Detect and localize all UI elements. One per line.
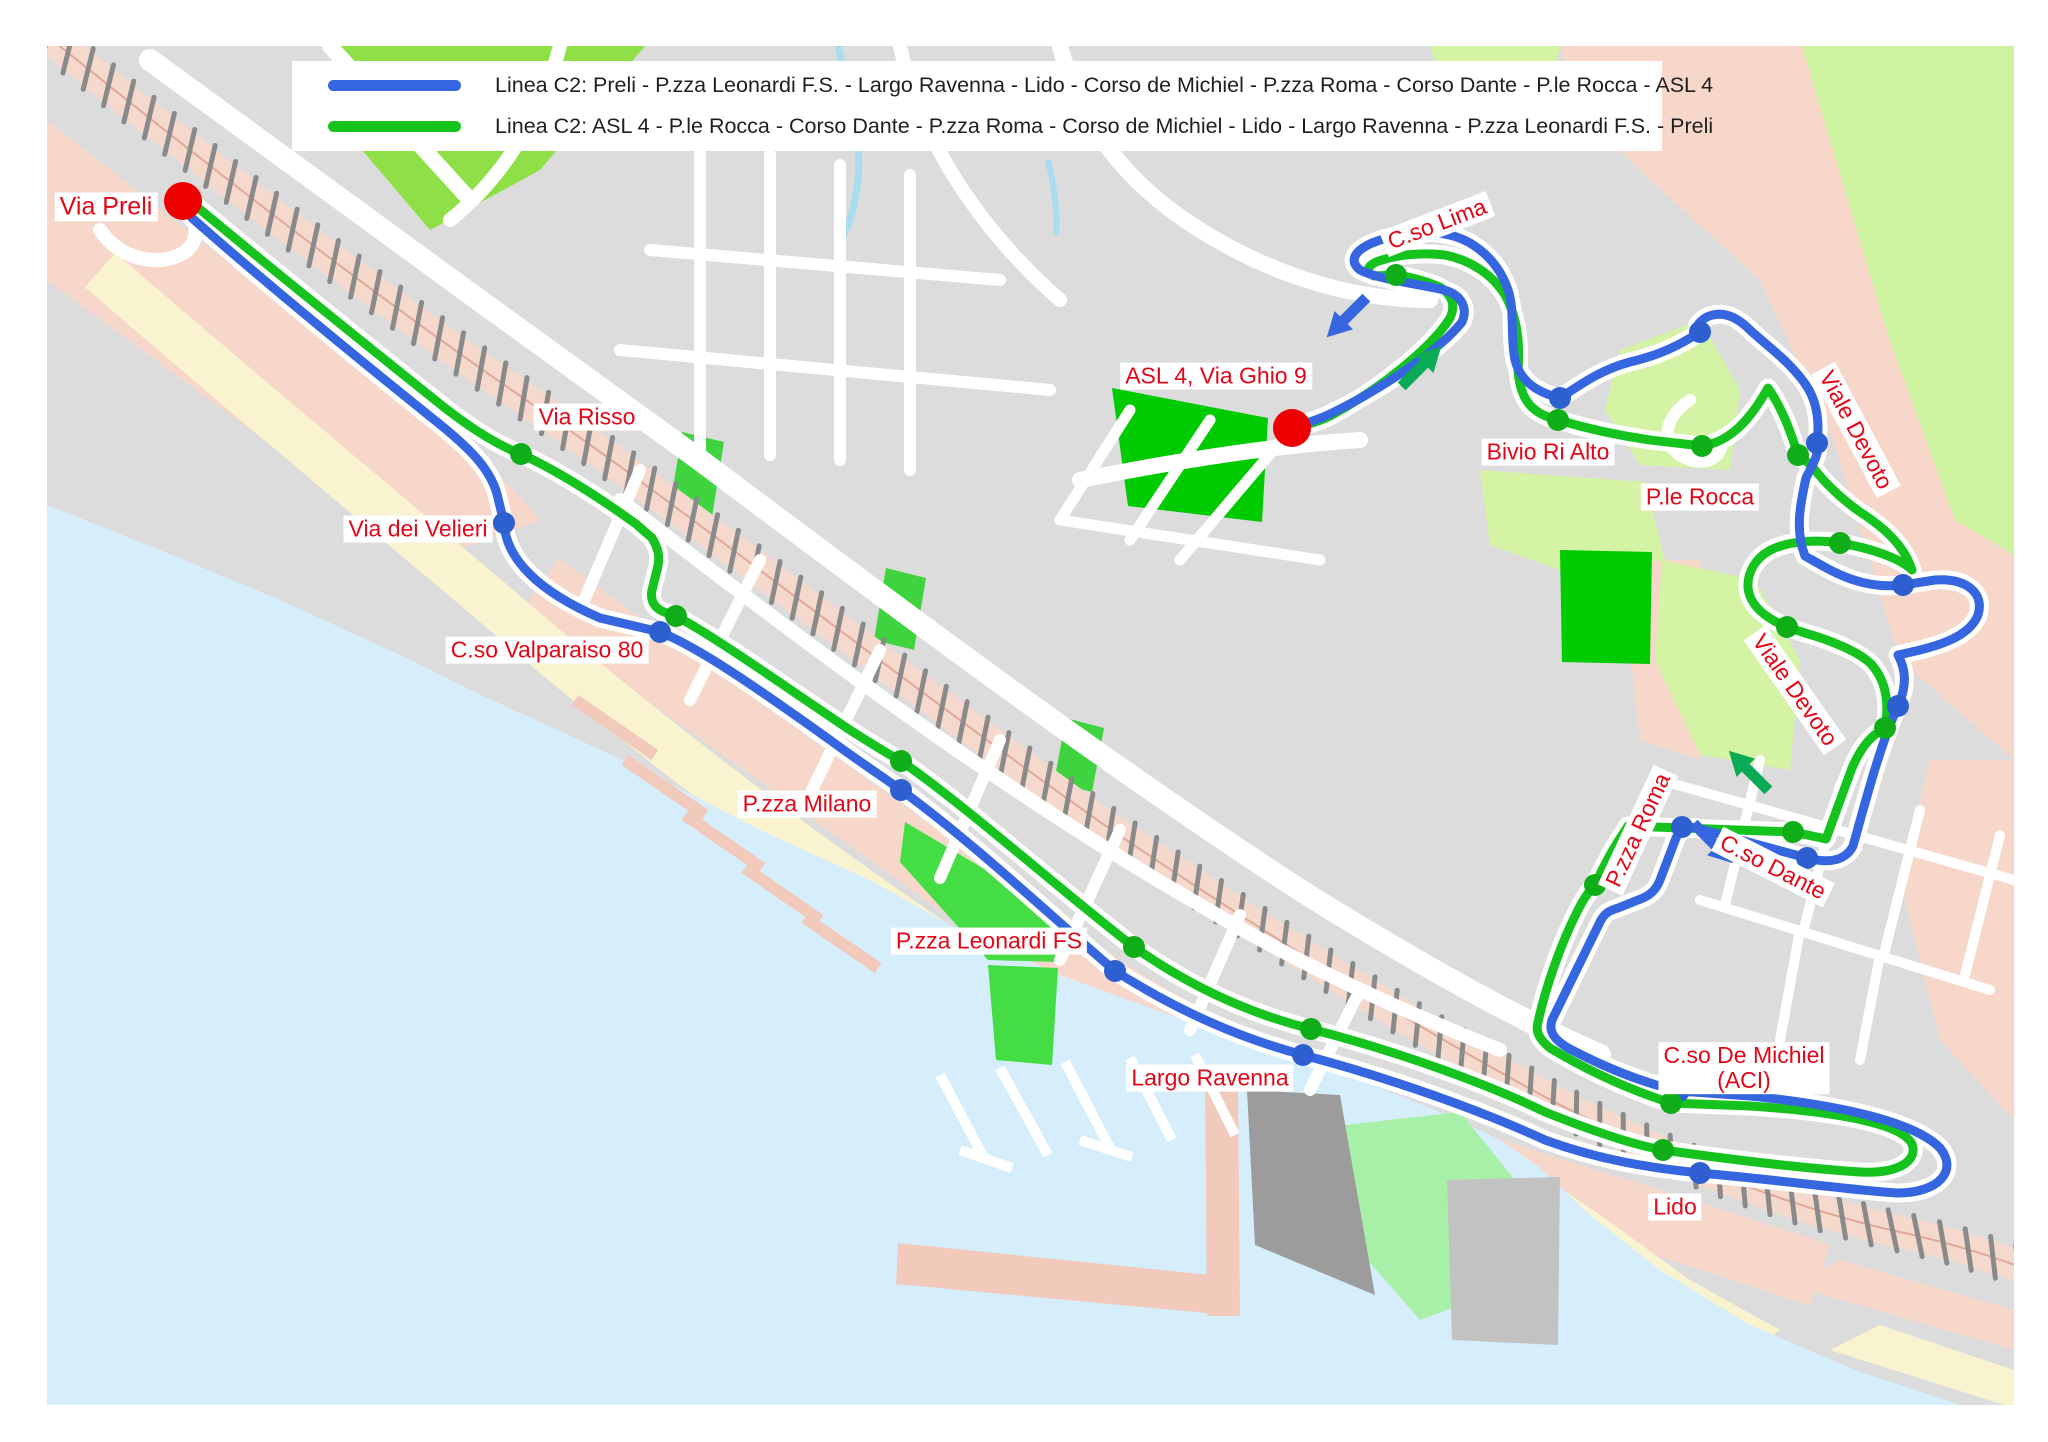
place-label: Largo Ravenna	[1126, 1065, 1293, 1092]
bus-stop-dot	[1549, 387, 1571, 409]
bus-stop-dot	[665, 605, 687, 627]
bus-stop-dot	[493, 512, 515, 534]
bus-stop-dot	[1292, 1044, 1314, 1066]
bus-stop-dot	[1689, 1162, 1711, 1184]
bus-stop-dot	[1660, 1092, 1682, 1114]
place-label: C.so De Michiel (ACI)	[1658, 1042, 1829, 1094]
place-label: Bivio Ri Alto	[1482, 439, 1615, 466]
place-label: Lido	[1648, 1194, 1701, 1221]
bus-stop-dot	[1887, 695, 1909, 717]
place-label: Via Risso	[534, 404, 641, 431]
bus-stop-dot	[890, 750, 912, 772]
legend-swatch-green	[328, 121, 461, 132]
bus-stop-dot	[1671, 816, 1693, 838]
place-label: P.zza Milano	[738, 791, 877, 818]
terminus-circle	[1273, 409, 1311, 447]
bus-stop-dot	[1123, 936, 1145, 958]
bus-stop-dot	[1829, 532, 1851, 554]
place-label: P.zza Leonardi FS	[891, 928, 1087, 955]
bus-stop-dot	[1689, 321, 1711, 343]
legend-row-return: Linea C2: ASL 4 - P.le Rocca - Corso Dan…	[292, 110, 1662, 144]
place-label: P.le Rocca	[1641, 484, 1759, 511]
bus-stop-dot	[1776, 616, 1798, 638]
route-map-page: Via PreliVia RissoVia dei VelieriC.so Va…	[0, 0, 2048, 1442]
bus-stop-dot	[890, 779, 912, 801]
bus-stop-dot	[1806, 432, 1828, 454]
bus-stop-dot	[1547, 409, 1569, 431]
place-label: C.so Valparaiso 80	[446, 637, 649, 664]
bus-stop-dot	[1787, 444, 1809, 466]
bus-stop-dot	[1892, 574, 1914, 596]
map-canvas	[0, 0, 2048, 1442]
place-label: Via dei Velieri	[344, 516, 493, 543]
bus-stop-dot	[1691, 435, 1713, 457]
bus-stop-dot	[510, 443, 532, 465]
bus-stop-dot	[1385, 264, 1407, 286]
place-label: ASL 4, Via Ghio 9	[1120, 363, 1312, 390]
terminus-circle	[164, 182, 202, 220]
legend-label-outbound: Linea C2: Preli - P.zza Leonardi F.S. - …	[495, 73, 1713, 98]
legend: Linea C2: Preli - P.zza Leonardi F.S. - …	[292, 61, 1662, 151]
bus-stop-dot	[1782, 821, 1804, 843]
place-label: Via Preli	[55, 193, 158, 222]
railway-tick	[2016, 1245, 2019, 1287]
bus-stop-dot	[1104, 960, 1126, 982]
legend-swatch-blue	[328, 80, 461, 91]
bus-stop-dot	[1874, 717, 1896, 739]
bus-stop-dot	[649, 621, 671, 643]
bus-stop-dot	[1652, 1139, 1674, 1161]
railway-tick	[2041, 1254, 2043, 1296]
legend-label-return: Linea C2: ASL 4 - P.le Rocca - Corso Dan…	[495, 114, 1713, 139]
bus-stop-dot	[1300, 1018, 1322, 1040]
legend-row-outbound: Linea C2: Preli - P.zza Leonardi F.S. - …	[292, 68, 1662, 102]
